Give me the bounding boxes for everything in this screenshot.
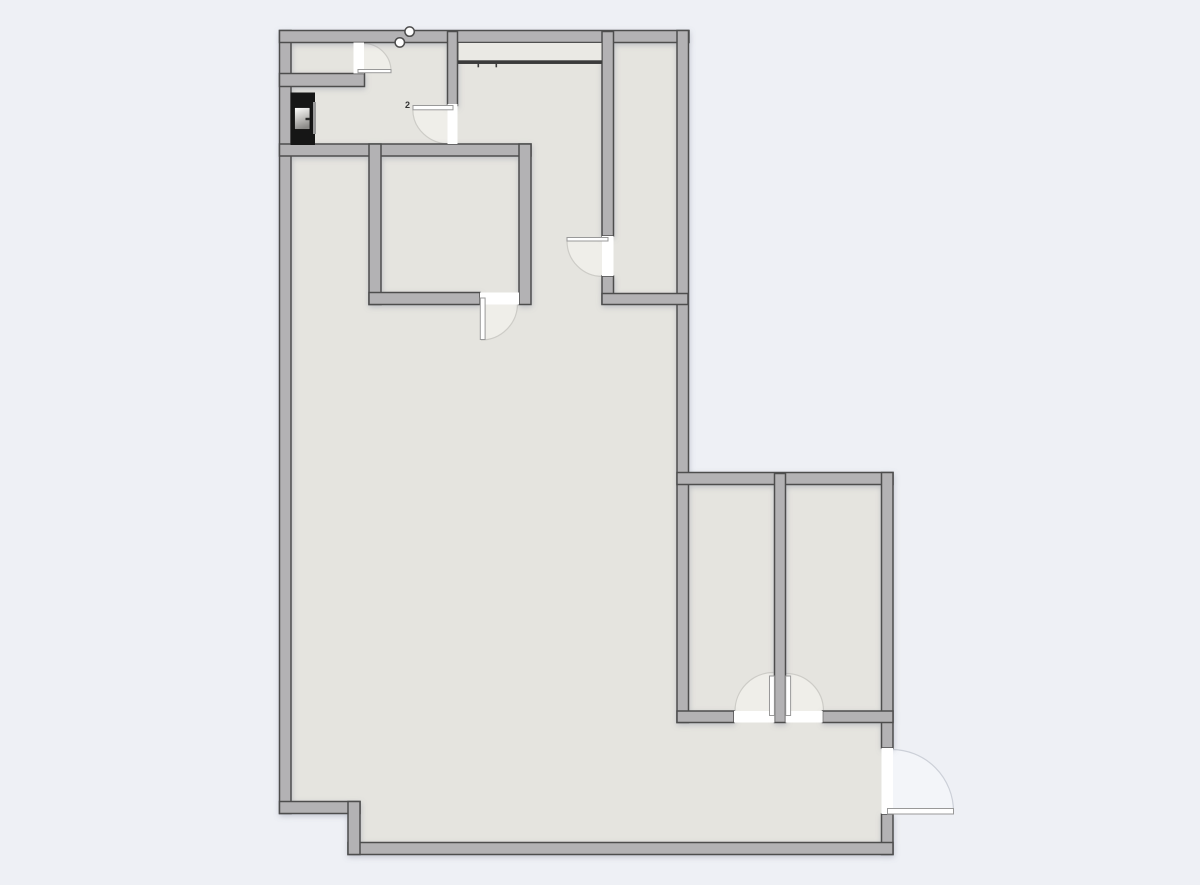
svg-text:2: 2 <box>405 100 410 110</box>
